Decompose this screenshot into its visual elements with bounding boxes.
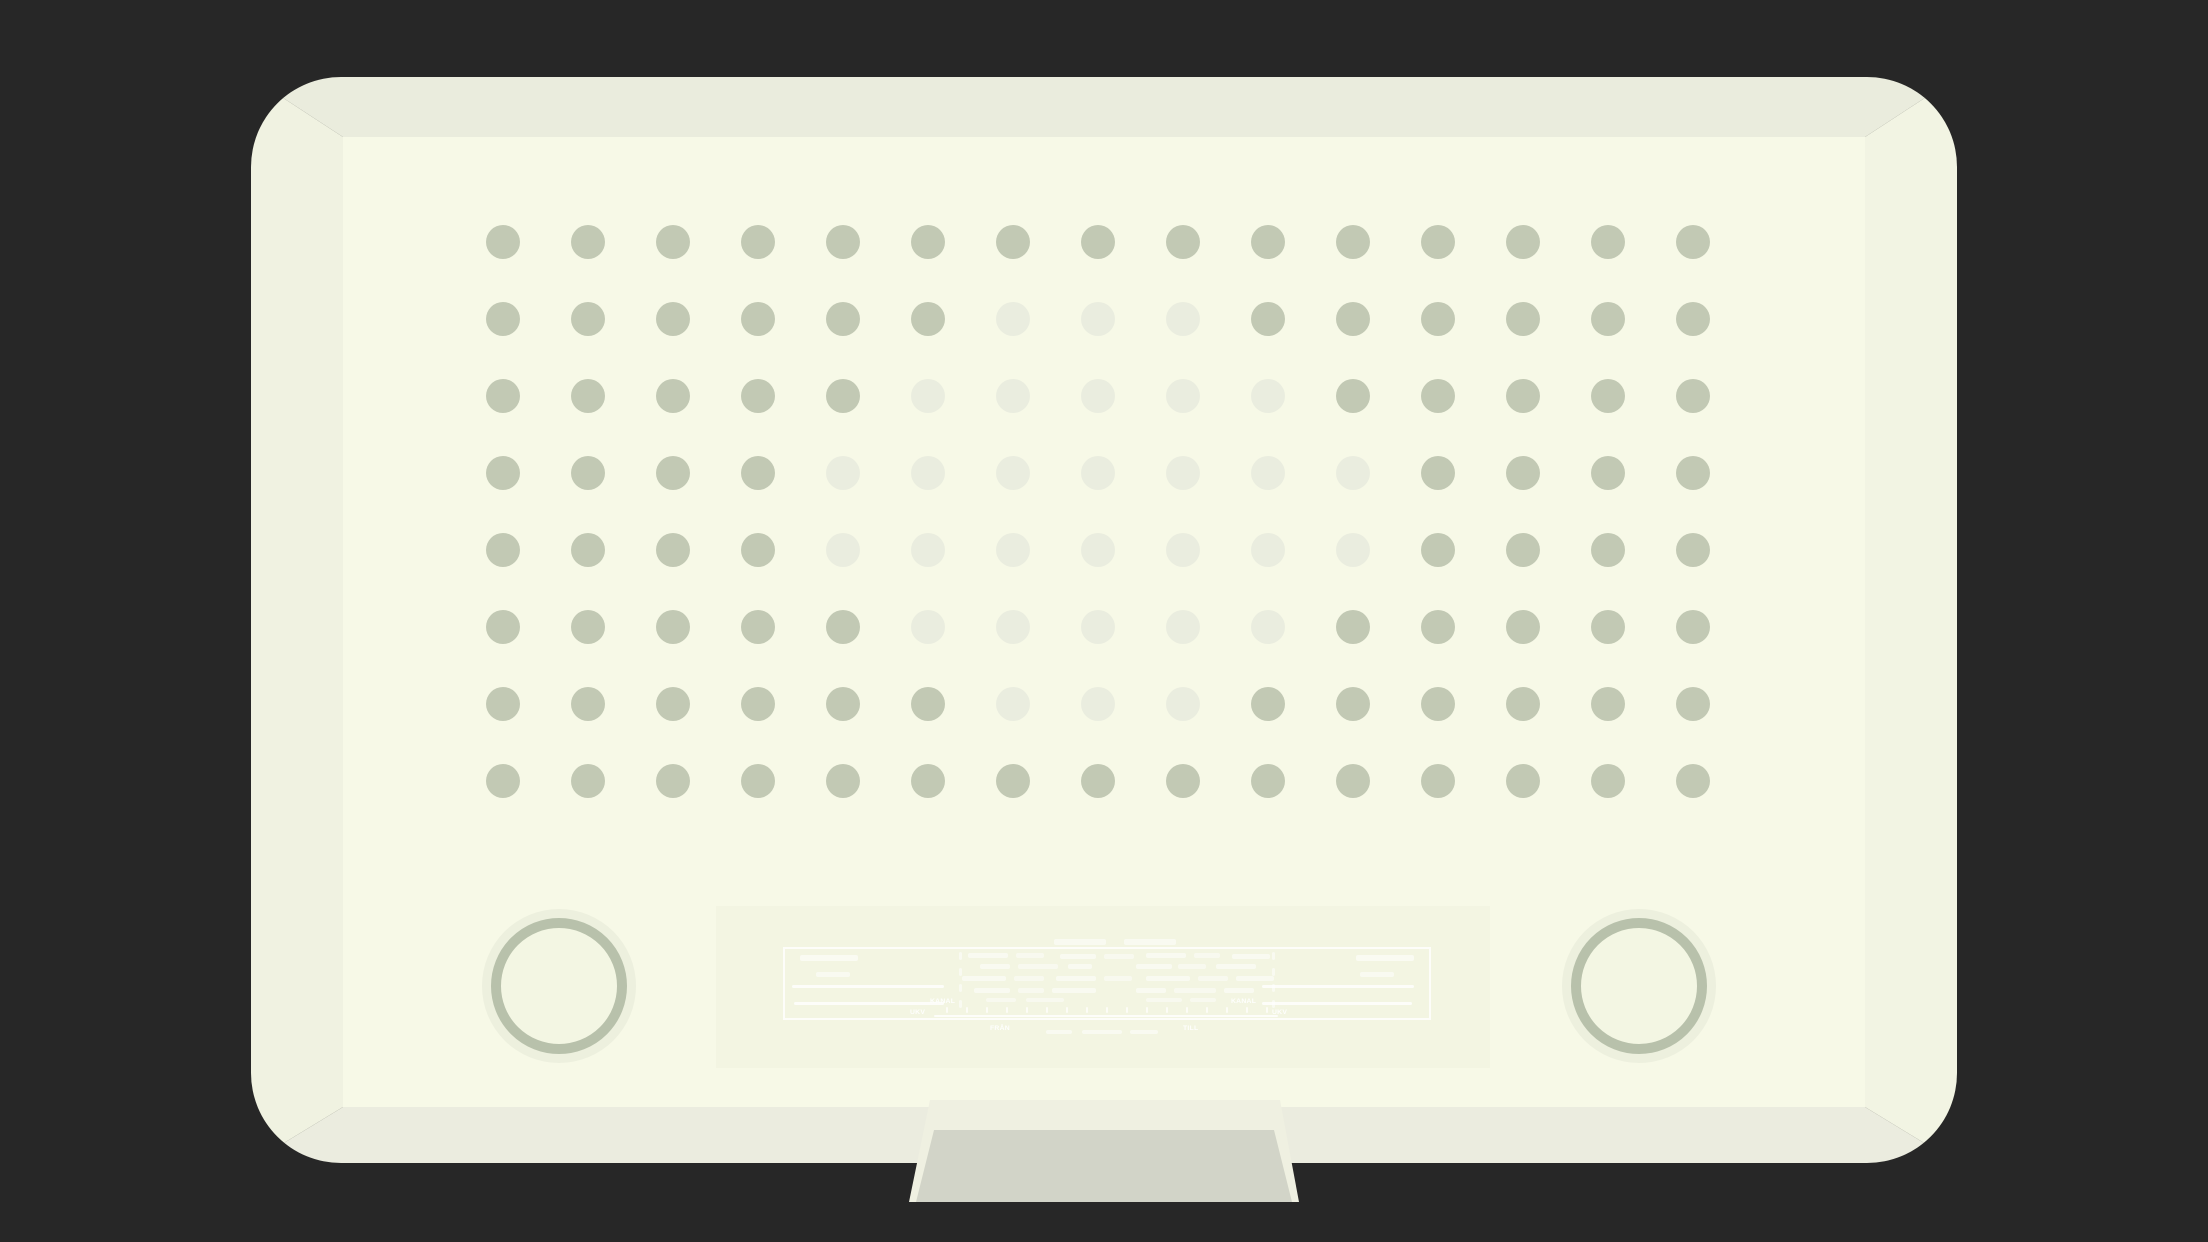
grille-dot xyxy=(1591,302,1625,336)
dial-mark xyxy=(959,1000,962,1008)
grille-dot xyxy=(1081,764,1115,798)
dial-label: FRÅN xyxy=(990,1025,1010,1032)
grille-dot xyxy=(656,456,690,490)
grille-dot xyxy=(996,456,1030,490)
dial-mark xyxy=(1246,1007,1248,1013)
dial-mark xyxy=(1104,976,1132,981)
grille-dot xyxy=(1251,687,1285,721)
dial-mark xyxy=(1166,1007,1168,1013)
grille-dot xyxy=(571,225,605,259)
dial-mark xyxy=(1052,988,1096,993)
grille-dot xyxy=(486,764,520,798)
grille-dot xyxy=(911,687,945,721)
radio-stand xyxy=(900,1095,1310,1203)
grille-dot xyxy=(571,379,605,413)
grille-dot xyxy=(1166,302,1200,336)
grille-dot xyxy=(1081,687,1115,721)
grille-dot xyxy=(571,533,605,567)
knob-ring-icon xyxy=(1571,918,1707,1054)
dial-mark xyxy=(1266,1007,1268,1013)
dial-mark xyxy=(1016,953,1044,958)
grille-dot xyxy=(911,302,945,336)
dial-panel: KANALKANALUKVUKVFRÅNTILL xyxy=(716,906,1490,1068)
tuning-knob[interactable] xyxy=(1562,909,1716,1063)
volume-knob[interactable] xyxy=(482,909,636,1063)
grille-dot xyxy=(1506,687,1540,721)
grille-dot xyxy=(1676,533,1710,567)
grille-dot xyxy=(741,533,775,567)
grille-dot xyxy=(741,764,775,798)
grille-dot xyxy=(656,225,690,259)
dial-mark xyxy=(1216,964,1256,969)
grille-dot xyxy=(1591,456,1625,490)
grille-dot xyxy=(826,764,860,798)
grille-dot xyxy=(571,456,605,490)
grille-dot xyxy=(911,610,945,644)
dial-mark xyxy=(1106,1007,1108,1013)
grille-dot xyxy=(571,302,605,336)
grille-dot xyxy=(1166,225,1200,259)
dial-mark xyxy=(1190,998,1216,1002)
grille-dot xyxy=(1421,610,1455,644)
dial-mark xyxy=(1262,985,1414,988)
grille-dot xyxy=(1336,687,1370,721)
grille-dot xyxy=(911,533,945,567)
dial-mark xyxy=(1224,988,1254,993)
dial-mark xyxy=(1194,953,1220,958)
grille-dot xyxy=(486,533,520,567)
dial-mark xyxy=(794,1002,944,1005)
dial-mark xyxy=(1026,1007,1028,1013)
grille-dot xyxy=(996,379,1030,413)
dial-mark xyxy=(1178,964,1206,969)
grille-dot xyxy=(1166,533,1200,567)
grille-dot xyxy=(1506,379,1540,413)
grille-dot xyxy=(1166,610,1200,644)
grille-dot xyxy=(1676,456,1710,490)
grille-dot xyxy=(1421,533,1455,567)
grille-dot xyxy=(911,225,945,259)
grille-dot xyxy=(1591,764,1625,798)
grille-dot xyxy=(1591,533,1625,567)
grille-dot xyxy=(826,610,860,644)
grille-dot xyxy=(486,225,520,259)
grille-dot xyxy=(486,610,520,644)
grille-dot xyxy=(486,302,520,336)
grille-dot xyxy=(571,687,605,721)
grille-dot xyxy=(911,764,945,798)
grille-dot xyxy=(996,764,1030,798)
grille-dot xyxy=(826,225,860,259)
grille-dot xyxy=(1421,302,1455,336)
grille-dot xyxy=(571,764,605,798)
grille-dot xyxy=(1421,764,1455,798)
grille-dot xyxy=(1506,533,1540,567)
dial-mark xyxy=(1146,976,1190,981)
dial-mark xyxy=(1236,976,1274,981)
dial-mark xyxy=(816,972,850,977)
dial-mark xyxy=(1082,1030,1122,1034)
grille-dot xyxy=(1421,379,1455,413)
grille-dot xyxy=(486,379,520,413)
dial-label: UKV xyxy=(910,1009,925,1016)
grille-dot xyxy=(996,610,1030,644)
grille-dot xyxy=(1676,225,1710,259)
grille-dot xyxy=(1336,225,1370,259)
dial-mark xyxy=(800,955,858,961)
grille-dot xyxy=(656,533,690,567)
dial-mark xyxy=(1054,939,1106,945)
grille-dot xyxy=(1081,302,1115,336)
grille-dot xyxy=(741,456,775,490)
dial-mark xyxy=(1126,1007,1128,1013)
dial-mark xyxy=(1130,1030,1158,1034)
grille-dot xyxy=(826,302,860,336)
grille-dot xyxy=(741,225,775,259)
grille-dot xyxy=(996,302,1030,336)
dial-mark xyxy=(1046,1007,1048,1013)
scene: KANALKANALUKVUKVFRÅNTILL xyxy=(0,0,2208,1242)
dial-mark xyxy=(1086,1007,1088,1013)
grille-dot xyxy=(571,610,605,644)
grille-dot xyxy=(1336,302,1370,336)
dial-mark xyxy=(1136,988,1166,993)
grille-dot xyxy=(1421,456,1455,490)
grille-dot xyxy=(1591,225,1625,259)
dial-mark xyxy=(1232,954,1270,959)
grille-dot xyxy=(656,610,690,644)
grille-dot xyxy=(1251,302,1285,336)
dial-label: KANAL xyxy=(1231,998,1256,1005)
grille-dot xyxy=(1081,456,1115,490)
dial-mark xyxy=(986,998,1016,1002)
dial-label: UKV xyxy=(1272,1009,1287,1016)
dial-mark xyxy=(959,968,962,976)
grille-dot xyxy=(1591,610,1625,644)
grille-dot xyxy=(1166,687,1200,721)
dial-mark xyxy=(1104,954,1134,959)
grille-dot xyxy=(486,687,520,721)
dial-mark xyxy=(1124,939,1176,945)
grille-dot xyxy=(1081,610,1115,644)
dial-mark xyxy=(1186,1007,1188,1013)
grille-dot xyxy=(1251,379,1285,413)
dial-mark xyxy=(966,1007,968,1013)
dial-mark xyxy=(1014,976,1044,981)
grille-dot xyxy=(1506,225,1540,259)
grille-dot xyxy=(1421,687,1455,721)
grille-dot xyxy=(741,379,775,413)
grille-dot xyxy=(1336,533,1370,567)
grille-dot xyxy=(1676,610,1710,644)
dial-mark xyxy=(962,976,1006,981)
grille-dot xyxy=(911,456,945,490)
dial-mark xyxy=(1136,964,1172,969)
grille-dot xyxy=(1676,379,1710,413)
grille-dot xyxy=(486,456,520,490)
grille-dot xyxy=(996,687,1030,721)
dial-mark xyxy=(1272,952,1275,960)
grille-dot xyxy=(1251,456,1285,490)
grille-dot xyxy=(826,687,860,721)
dial-mark xyxy=(1026,998,1064,1002)
dial-mark xyxy=(968,953,1008,958)
grille-dot xyxy=(826,379,860,413)
grille-dot xyxy=(1336,379,1370,413)
dial-mark xyxy=(934,1015,1278,1017)
dial-mark xyxy=(974,988,1010,993)
dial-mark xyxy=(1068,964,1092,969)
grille-dot xyxy=(1336,610,1370,644)
grille-dot xyxy=(656,379,690,413)
grille-dot xyxy=(1336,764,1370,798)
grille-dot xyxy=(1336,456,1370,490)
grille-dot xyxy=(741,687,775,721)
dial-mark xyxy=(792,985,944,988)
grille-dot xyxy=(1251,533,1285,567)
grille-dot xyxy=(1421,225,1455,259)
dial-mark xyxy=(980,964,1010,969)
grille-dot xyxy=(1081,379,1115,413)
dial-label: KANAL xyxy=(930,998,955,1005)
dial-mark xyxy=(1006,1007,1008,1013)
grille-dot xyxy=(1591,687,1625,721)
grille-dot xyxy=(826,456,860,490)
dial-mark xyxy=(1198,976,1228,981)
dial-mark xyxy=(1356,955,1414,961)
grille-dot xyxy=(1506,764,1540,798)
grille-dot xyxy=(656,302,690,336)
grille-dot xyxy=(1506,456,1540,490)
dial-mark xyxy=(959,984,962,992)
grille-dot xyxy=(1591,379,1625,413)
dial-mark xyxy=(1066,1007,1068,1013)
dial-mark xyxy=(1018,964,1058,969)
grille-dot xyxy=(826,533,860,567)
grille-dot xyxy=(741,610,775,644)
dial-mark xyxy=(1146,953,1186,958)
grille-dot xyxy=(1166,379,1200,413)
grille-dot xyxy=(656,764,690,798)
dial-mark xyxy=(946,1007,948,1013)
grille-dot xyxy=(996,533,1030,567)
grille-dot xyxy=(1676,302,1710,336)
grille-dot xyxy=(1251,610,1285,644)
grille-dot xyxy=(1251,225,1285,259)
dial-mark xyxy=(1262,1002,1412,1005)
dial-mark xyxy=(986,1007,988,1013)
dial-mark xyxy=(959,952,962,960)
dial-mark xyxy=(1046,1030,1072,1034)
dial-mark xyxy=(1174,988,1216,993)
dial-mark xyxy=(1272,968,1275,976)
grille-dot xyxy=(1506,302,1540,336)
grille-dot xyxy=(1676,764,1710,798)
knob-ring-icon xyxy=(491,918,627,1054)
dial-mark xyxy=(1146,1007,1148,1013)
grille-dot xyxy=(741,302,775,336)
grille-dot xyxy=(1506,610,1540,644)
grille-dot xyxy=(1251,764,1285,798)
grille-dot xyxy=(1166,456,1200,490)
grille-dot xyxy=(911,379,945,413)
dial-mark xyxy=(1018,988,1044,993)
grille-dot xyxy=(1081,225,1115,259)
grille-dot xyxy=(1676,687,1710,721)
dial-mark xyxy=(1360,972,1394,977)
dial-mark xyxy=(1056,976,1096,981)
dial-mark xyxy=(1060,954,1096,959)
dial-mark xyxy=(1272,1000,1275,1008)
dial-mark xyxy=(1226,1007,1228,1013)
dial-label: TILL xyxy=(1183,1025,1198,1032)
grille-dot xyxy=(1166,764,1200,798)
dial-mark xyxy=(1146,998,1182,1002)
dial-mark xyxy=(1272,984,1275,992)
dial-mark xyxy=(1206,1007,1208,1013)
speaker-grille xyxy=(486,225,1710,798)
grille-dot xyxy=(656,687,690,721)
grille-dot xyxy=(1081,533,1115,567)
grille-dot xyxy=(996,225,1030,259)
